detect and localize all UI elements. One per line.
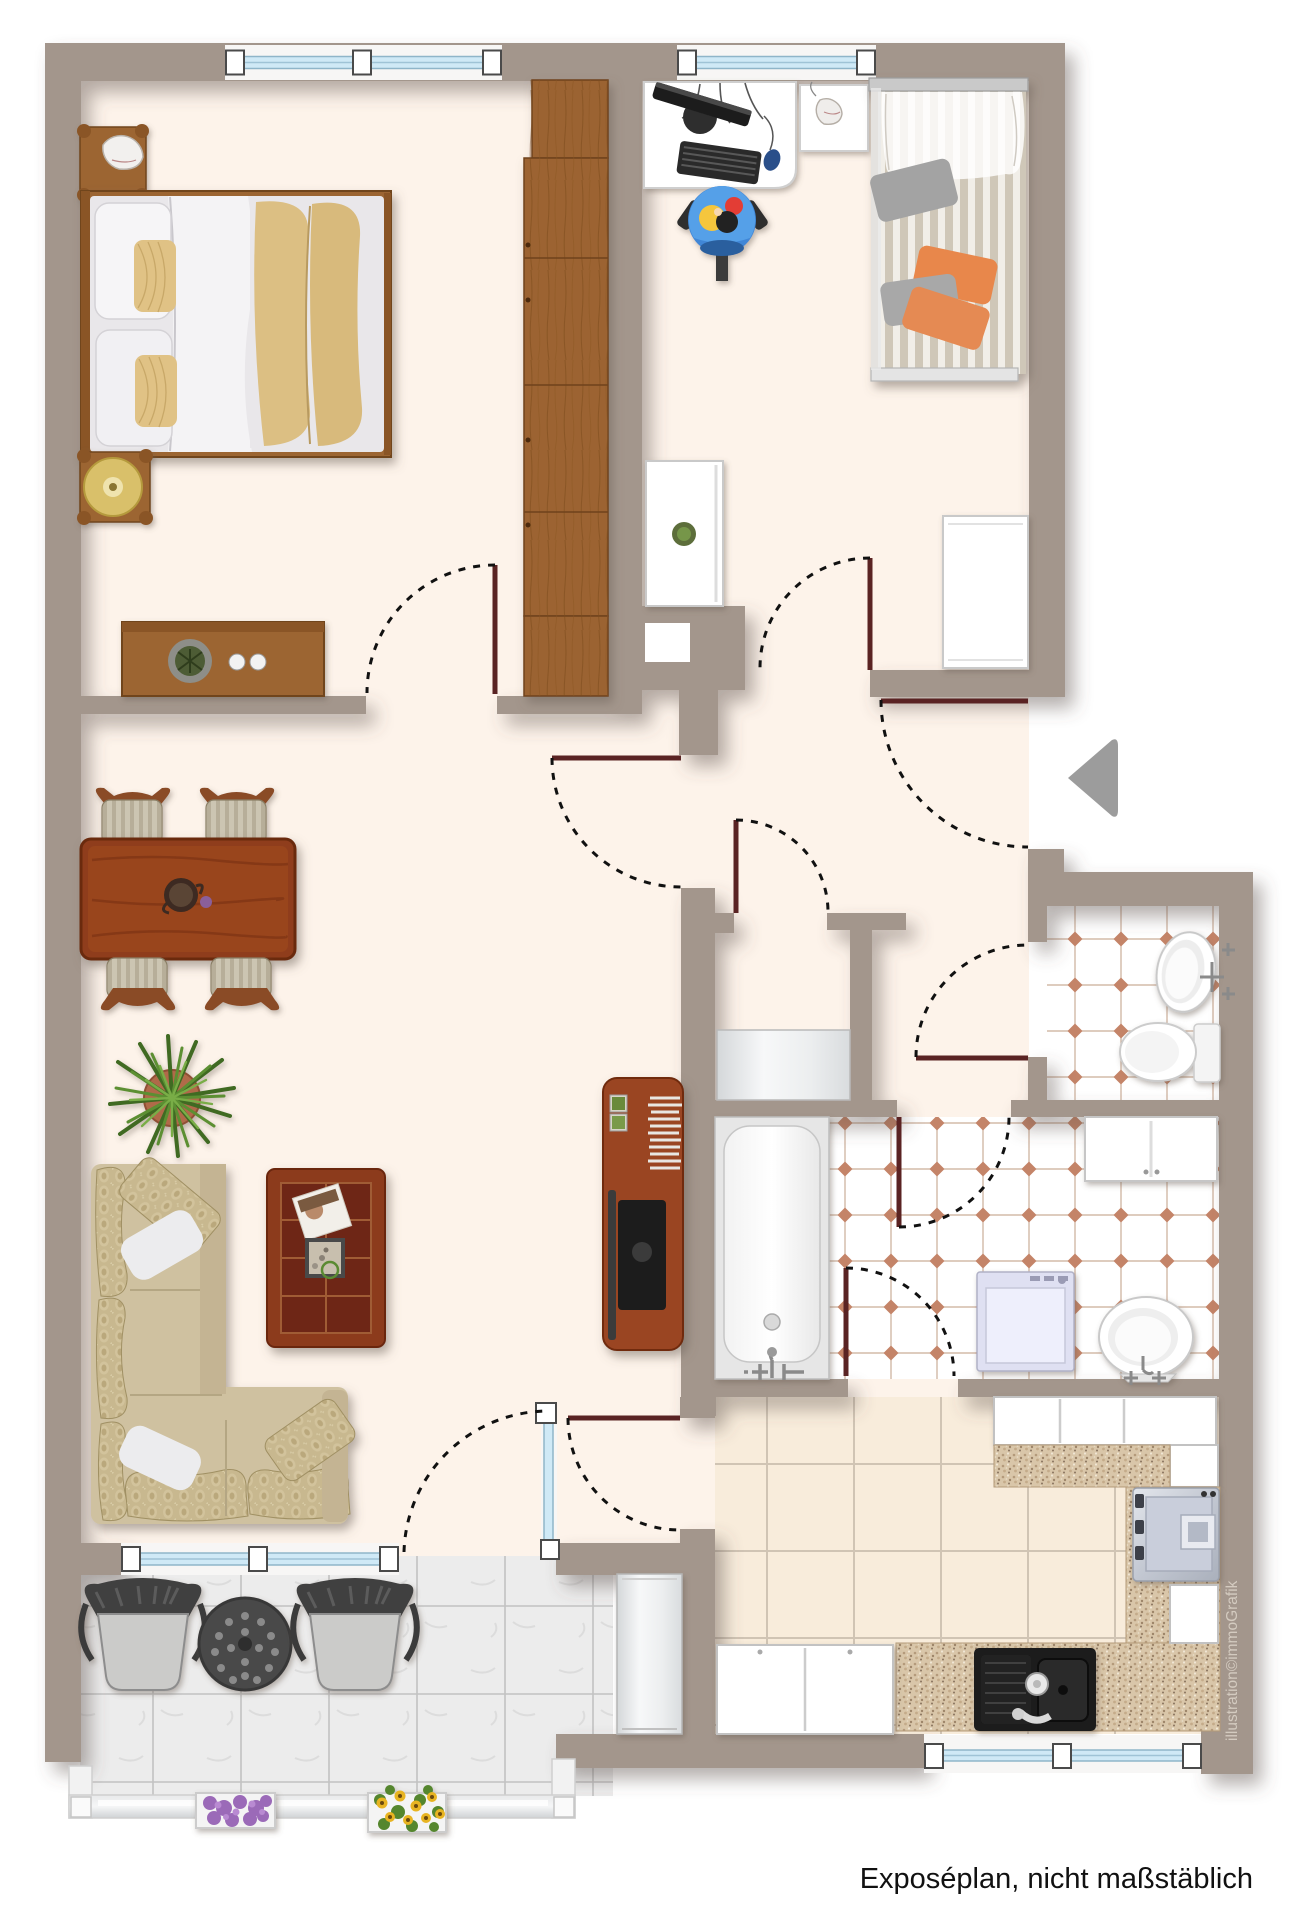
- svg-text:illustration©immoGrafik: illustration©immoGrafik: [1224, 1580, 1241, 1741]
- svg-text:Exposéplan, nicht maßstäblich: Exposéplan, nicht maßstäblich: [860, 1863, 1253, 1895]
